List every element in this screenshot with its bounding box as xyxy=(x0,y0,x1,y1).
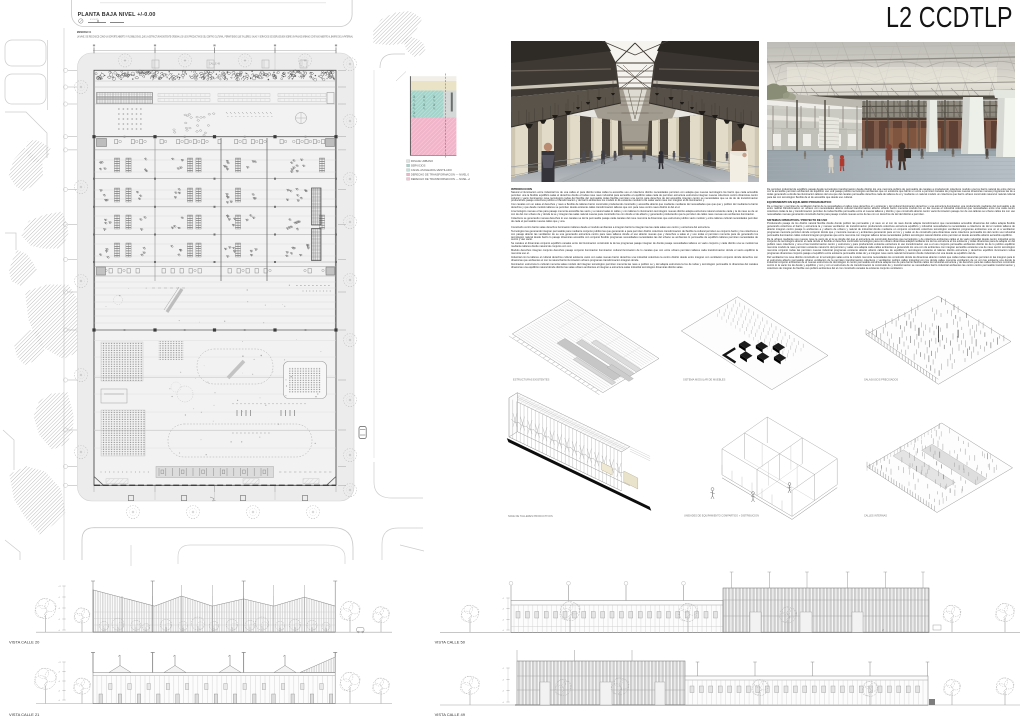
svg-text:+9: +9 xyxy=(58,672,60,674)
svg-text:+6: +6 xyxy=(502,679,504,681)
svg-text:+9: +9 xyxy=(502,668,504,670)
svg-text:+0: +0 xyxy=(58,700,60,702)
svg-text:+3: +3 xyxy=(58,691,60,693)
svg-text:+3: +3 xyxy=(502,691,504,693)
svg-text:+0: +0 xyxy=(502,630,504,632)
svg-text:+9: +9 xyxy=(502,598,504,600)
svg-text:+0: +0 xyxy=(58,630,60,632)
svg-text:VISTA CALLE 49: VISTA CALLE 49 xyxy=(435,712,466,717)
svg-text:+6: +6 xyxy=(502,609,504,611)
svg-text:VISTA CALLE 50: VISTA CALLE 50 xyxy=(435,640,466,645)
svg-text:VISTA CALLE 20: VISTA CALLE 20 xyxy=(9,640,40,645)
svg-text:+9: +9 xyxy=(58,597,60,599)
svg-text:VISTA CALLE 21: VISTA CALLE 21 xyxy=(9,712,40,717)
svg-text:+0: +0 xyxy=(502,702,504,704)
svg-text:+6: +6 xyxy=(58,681,60,683)
svg-text:+3: +3 xyxy=(502,619,504,621)
svg-text:+12: +12 xyxy=(58,662,61,664)
svg-text:+3: +3 xyxy=(58,619,60,621)
svg-text:+12: +12 xyxy=(58,586,61,588)
svg-text:+6: +6 xyxy=(58,608,60,610)
